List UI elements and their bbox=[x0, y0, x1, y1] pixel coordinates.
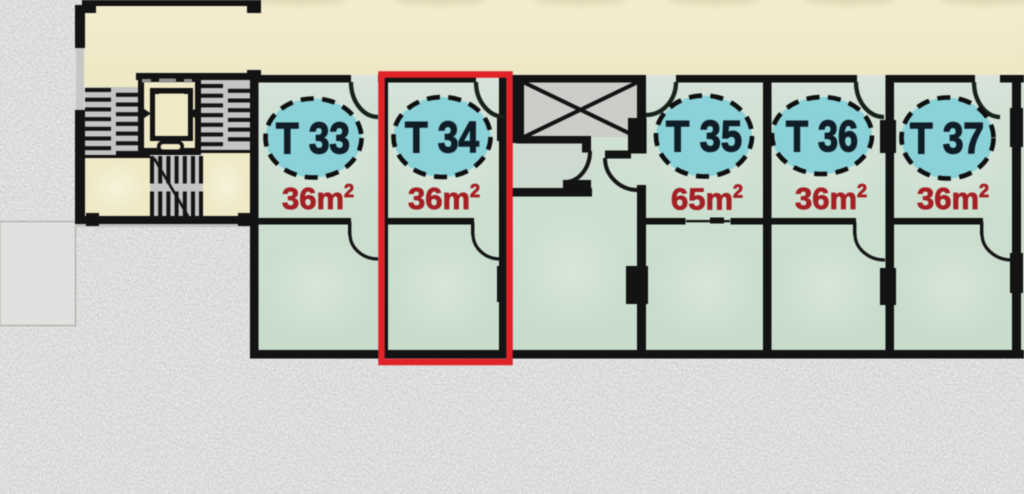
svg-text:36m2: 36m2 bbox=[917, 181, 989, 216]
svg-text:T 36: T 36 bbox=[786, 112, 858, 161]
svg-text:65m2: 65m2 bbox=[671, 182, 743, 217]
svg-text:36m2: 36m2 bbox=[795, 181, 867, 216]
svg-text:36m2: 36m2 bbox=[282, 181, 354, 216]
svg-text:36m2: 36m2 bbox=[408, 181, 480, 216]
svg-text:T 35: T 35 bbox=[666, 112, 742, 161]
svg-text:T 33: T 33 bbox=[276, 114, 350, 163]
svg-text:T 34: T 34 bbox=[405, 113, 479, 162]
svg-text:T 37: T 37 bbox=[910, 114, 984, 163]
